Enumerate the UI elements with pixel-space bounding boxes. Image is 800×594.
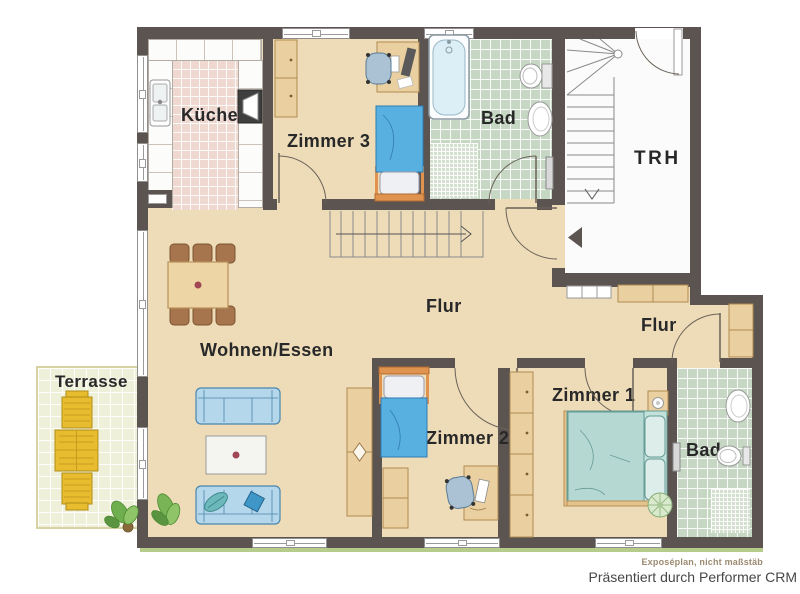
doorway-bath-bottom (677, 358, 720, 368)
footer-credit: Präsentiert durch Performer CRM (588, 569, 797, 585)
terrace-door (137, 427, 148, 500)
room-label-bad-top: Bad (481, 109, 516, 127)
window-bottom-zimmer2 (424, 538, 500, 548)
wall-zimmer2-top (372, 358, 455, 368)
kitchen-hatch (148, 194, 167, 204)
wall-zimmer1-bath2-divider (667, 358, 677, 548)
wall-top (137, 27, 700, 39)
doorway-zimmer3 (277, 199, 322, 210)
window-bottom-living (252, 538, 327, 548)
window-dining (137, 230, 148, 377)
wall-trh-right (690, 27, 701, 305)
room-label-bad-bottom: Bad (686, 441, 721, 459)
room-label-wohnen-essen: Wohnen/Essen (200, 341, 334, 359)
shower-bath-bottom (711, 489, 750, 533)
entrance-opening (635, 28, 683, 39)
wall-zimmer2-left (372, 358, 382, 548)
wall-bath1-right-lower (552, 268, 565, 287)
window-kitchen-2 (137, 143, 148, 182)
wall-bath2-top (720, 358, 753, 368)
wall-bath1-right (552, 27, 565, 205)
wall-trh-bottom (565, 273, 690, 287)
room-label-kueche: Küche (181, 106, 238, 124)
room-label-trh: TRH (634, 149, 681, 168)
wall-zimmer1-top-left (517, 358, 585, 368)
wall-right (752, 295, 763, 548)
wall-bath1-left (418, 39, 430, 199)
wall-zimmer1-2-divider (498, 358, 510, 548)
window-kitchen-1 (137, 55, 148, 133)
kitchen-counter-right (238, 60, 263, 208)
room-label-zimmer2: Zimmer 2 (426, 429, 509, 447)
footer-disclaimer: Exposéplan, nicht maßstäb (641, 557, 763, 567)
kitchen-counter-top (148, 39, 262, 61)
window-top-zimmer3 (282, 28, 350, 39)
wall-kitchen-right (263, 39, 273, 210)
doorway-entrance (552, 205, 565, 268)
doorway-zimmer2 (455, 358, 517, 368)
room-label-zimmer3: Zimmer 3 (287, 132, 370, 150)
window-bottom-zimmer1 (595, 538, 662, 548)
room-label-flur-center: Flur (426, 297, 462, 315)
window-top-bath (424, 28, 474, 39)
floor-kitchen (172, 60, 238, 210)
doorway-zimmer1 (585, 358, 633, 368)
shower-bath-top (429, 143, 478, 198)
kitchen-counter-left (148, 60, 173, 208)
floorplan: Küche Zimmer 3 Bad TRH Flur Wohnen/Essen… (0, 0, 800, 594)
room-label-terrasse: Terrasse (55, 373, 128, 390)
grass-strip (140, 548, 763, 552)
room-label-flur-right: Flur (641, 316, 677, 334)
room-label-zimmer1: Zimmer 1 (552, 386, 635, 404)
doorway-bath-top (495, 199, 537, 210)
